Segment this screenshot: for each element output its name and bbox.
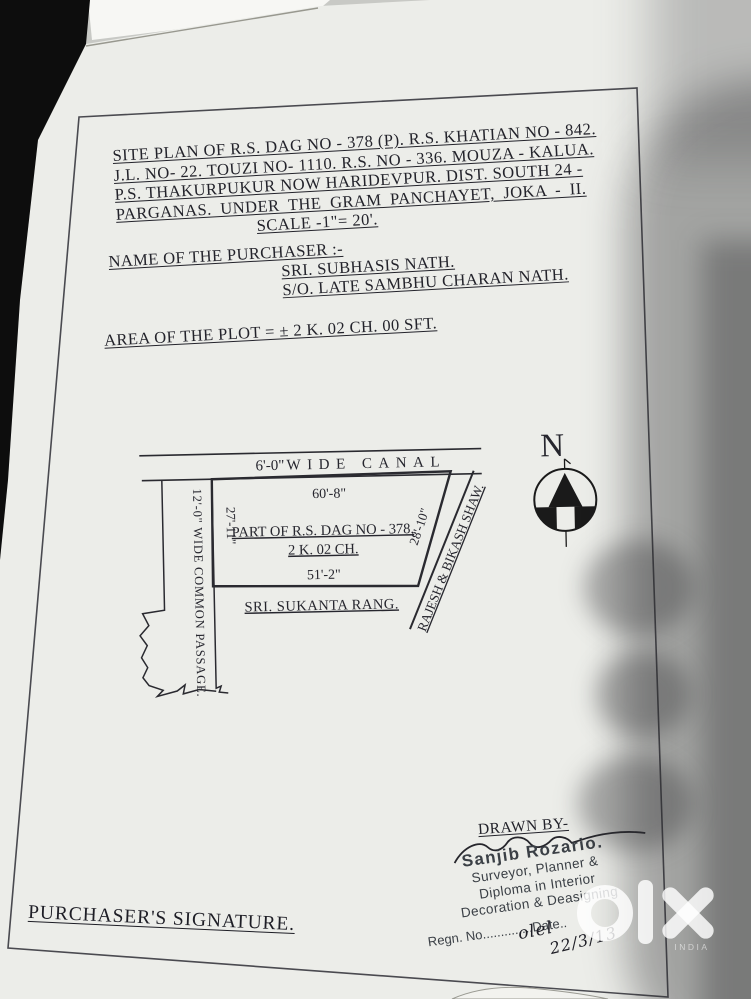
compass-fill-left [535, 507, 557, 530]
north-side-dimension: 60'-8" [312, 486, 346, 502]
title-block: SITE PLAN OF R.S. DAG NO - 378 (P). R.S.… [112, 116, 657, 244]
canal-label: WIDE CANAL [286, 454, 446, 473]
date-dots: .. [558, 914, 567, 930]
south-owner-label: SRI. SUKANTA RANG. [244, 596, 399, 615]
regn-label: Regn. No [427, 926, 483, 948]
site-plan-drawing: 6'-0" WIDE CANAL 60'-8" 27'-11" 28'-10" … [128, 432, 614, 754]
purchaser-signature-label: PURCHASER'S SIGNATURE. [28, 902, 296, 936]
north-letter: N [540, 432, 565, 464]
canal-line-bottom [142, 474, 482, 481]
photographed-site-plan: SITE PLAN OF R.S. DAG NO - 378 (P). R.S.… [0, 0, 751, 999]
plot-label-line-2: 2 K. 02 CH. [288, 541, 359, 558]
plot-area-line: AREA OF THE PLOT = ± 2 K. 02 CH. 00 SFT. [104, 313, 438, 350]
plot-label-line-1: PART OF R.S. DAG NO - 378. [232, 521, 415, 541]
canal-dimension: 6'-0" [255, 458, 284, 475]
north-arrow: N [533, 432, 597, 548]
compass-fill-right [574, 506, 596, 529]
document-content: SITE PLAN OF R.S. DAG NO - 378 (P). R.S.… [0, 0, 751, 999]
common-passage-label: 12'-0" WIDE COMMON PASSAGE. [190, 488, 208, 697]
south-side-dimension: 51'-2" [307, 568, 341, 584]
